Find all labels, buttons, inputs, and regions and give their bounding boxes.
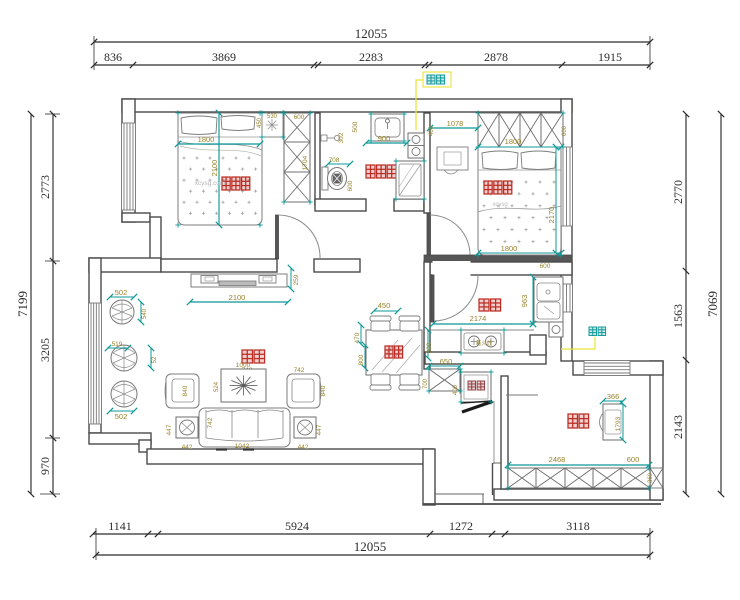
svg-text:502: 502 <box>115 288 128 297</box>
svg-text:1141: 1141 <box>108 519 132 533</box>
svg-text:963: 963 <box>520 295 529 308</box>
svg-text:447: 447 <box>316 424 323 435</box>
svg-text:470: 470 <box>354 332 361 343</box>
svg-text:800: 800 <box>358 354 365 365</box>
svg-text:259: 259 <box>293 274 300 285</box>
svg-text:836: 836 <box>104 50 122 64</box>
svg-text:366: 366 <box>607 392 620 401</box>
svg-text:2878: 2878 <box>484 50 508 64</box>
svg-text:360: 360 <box>648 472 654 483</box>
svg-text:5924: 5924 <box>285 519 309 533</box>
svg-text:1272: 1272 <box>449 519 473 533</box>
svg-text:442: 442 <box>298 444 309 451</box>
svg-text:12055: 12055 <box>355 26 388 41</box>
svg-text:1800: 1800 <box>198 135 215 144</box>
svg-text:2143: 2143 <box>671 415 685 439</box>
svg-text:600: 600 <box>627 455 640 464</box>
svg-text:540: 540 <box>142 308 148 319</box>
svg-text:700: 700 <box>423 378 429 389</box>
svg-text:447: 447 <box>166 424 173 435</box>
svg-text:900: 900 <box>378 134 391 143</box>
svg-text:742: 742 <box>294 367 305 374</box>
svg-text:650: 650 <box>440 357 453 366</box>
svg-text:970: 970 <box>38 457 52 475</box>
svg-text:530: 530 <box>267 114 278 120</box>
svg-text:400: 400 <box>453 384 459 395</box>
svg-text:1042: 1042 <box>235 443 250 450</box>
svg-text:1793: 1793 <box>615 416 622 431</box>
svg-text:2174: 2174 <box>470 314 487 323</box>
svg-text:500: 500 <box>352 121 359 132</box>
svg-text:2770: 2770 <box>671 180 685 204</box>
svg-text:302: 302 <box>338 132 345 143</box>
svg-text:400: 400 <box>429 125 435 136</box>
svg-text:着火灶: 着火灶 <box>476 339 493 347</box>
svg-text:524: 524 <box>214 381 220 392</box>
svg-text:600: 600 <box>426 342 433 353</box>
svg-text:519: 519 <box>112 341 123 348</box>
svg-text:xcysg: xcysg <box>492 202 507 208</box>
svg-text:7199: 7199 <box>15 291 30 317</box>
svg-text:1000: 1000 <box>236 362 251 369</box>
svg-text:840: 840 <box>182 385 189 396</box>
svg-text:450: 450 <box>257 117 263 128</box>
svg-text:2468: 2468 <box>549 455 566 464</box>
svg-text:2170: 2170 <box>547 207 556 224</box>
svg-text:2283: 2283 <box>359 50 383 64</box>
svg-text:600: 600 <box>347 180 354 191</box>
svg-text:52: 52 <box>152 356 158 363</box>
svg-text:1915: 1915 <box>598 50 622 64</box>
svg-text:742: 742 <box>207 417 214 428</box>
svg-text:7069: 7069 <box>705 291 720 317</box>
svg-text:1563: 1563 <box>671 304 685 328</box>
svg-text:1800: 1800 <box>505 137 522 146</box>
svg-text:3118: 3118 <box>566 519 590 533</box>
svg-text:3869: 3869 <box>212 50 236 64</box>
svg-text:442: 442 <box>182 444 193 451</box>
svg-text:3205: 3205 <box>38 338 52 362</box>
svg-text:502: 502 <box>115 412 128 421</box>
svg-text:840: 840 <box>320 385 327 396</box>
svg-text:600: 600 <box>294 114 305 121</box>
svg-text:708: 708 <box>329 157 340 164</box>
svg-text:2100: 2100 <box>210 160 219 177</box>
svg-text:1704: 1704 <box>302 155 309 170</box>
svg-text:600: 600 <box>540 263 551 270</box>
svg-text:2100: 2100 <box>229 293 246 302</box>
svg-text:600: 600 <box>562 125 568 136</box>
svg-text:xcysg.com: xcysg.com <box>195 180 226 187</box>
svg-text:1800: 1800 <box>501 244 518 253</box>
svg-text:12055: 12055 <box>354 539 387 554</box>
svg-text:2773: 2773 <box>38 175 52 199</box>
svg-text:1078: 1078 <box>447 119 464 128</box>
svg-text:450: 450 <box>378 301 391 310</box>
